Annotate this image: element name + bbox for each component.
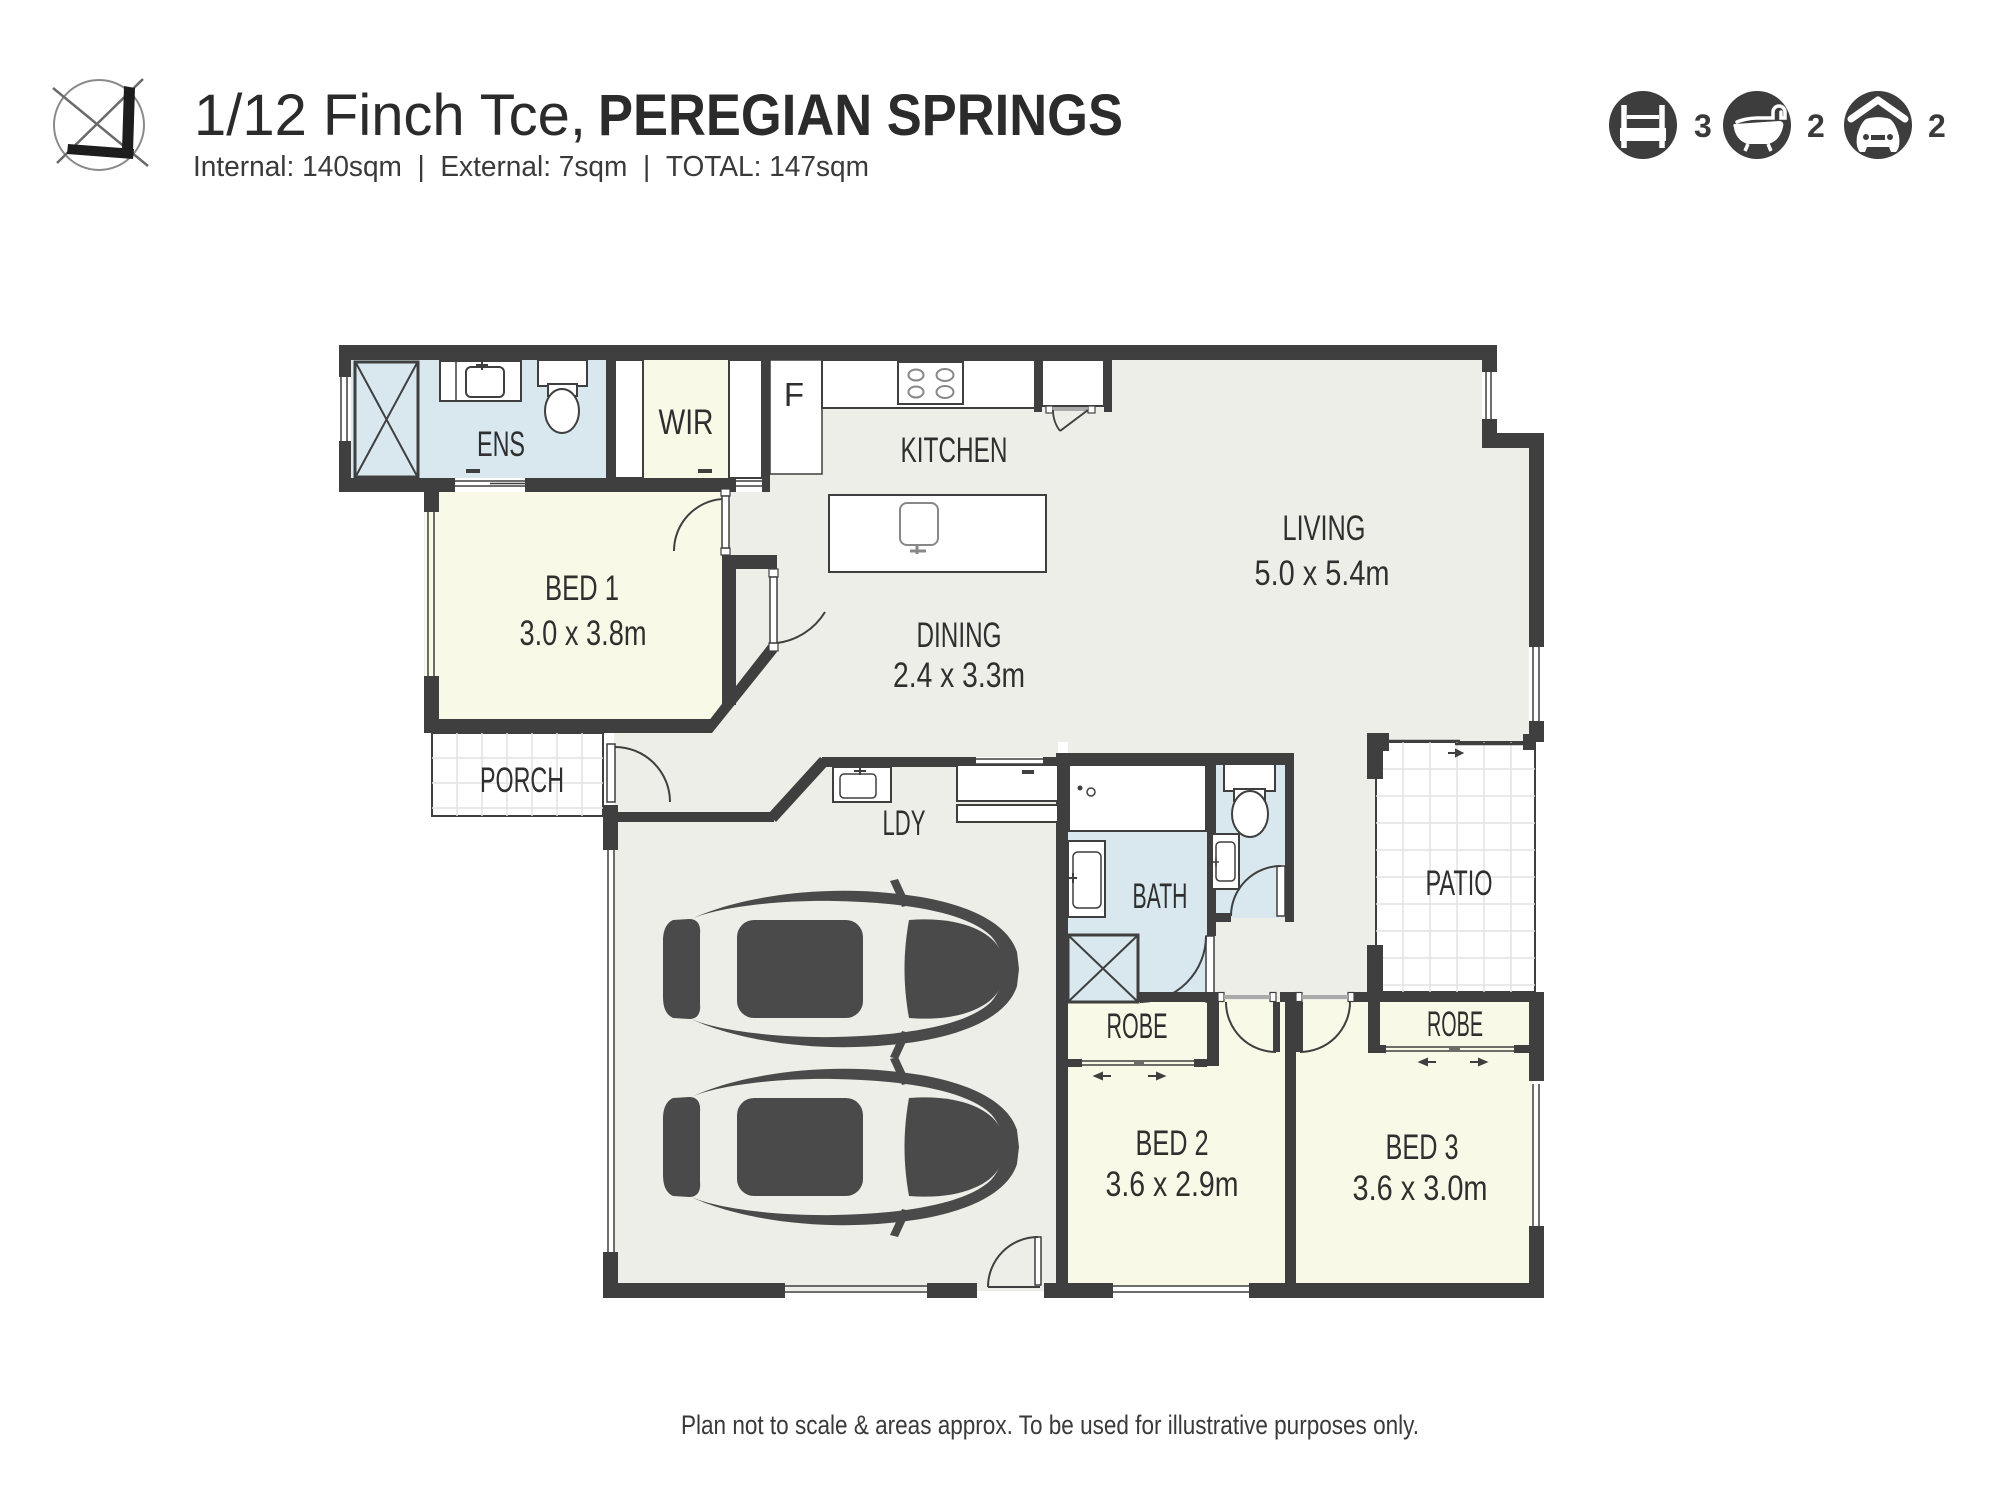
svg-text:3.6 x 2.9m: 3.6 x 2.9m xyxy=(1106,1165,1239,1204)
svg-text:LDY: LDY xyxy=(883,804,926,843)
svg-text:2: 2 xyxy=(1807,108,1825,144)
svg-text:Plan not to scale & areas appr: Plan not to scale & areas approx. To be … xyxy=(681,1410,1419,1440)
svg-text:PEREGIAN SPRINGS: PEREGIAN SPRINGS xyxy=(598,83,1123,148)
svg-text:5.0 x 5.4m: 5.0 x 5.4m xyxy=(1255,554,1390,593)
svg-text:PORCH: PORCH xyxy=(480,761,564,800)
svg-text:2.4 x 3.3m: 2.4 x 3.3m xyxy=(893,656,1025,695)
svg-text:ROBE: ROBE xyxy=(1427,1005,1483,1044)
svg-text:3.0 x 3.8m: 3.0 x 3.8m xyxy=(520,614,647,653)
svg-text:Internal: 140sqm | External:: Internal: 140sqm | External: 7sqm | TOTA… xyxy=(193,151,869,183)
svg-text:3.6 x 3.0m: 3.6 x 3.0m xyxy=(1353,1169,1488,1208)
svg-text:KITCHEN: KITCHEN xyxy=(901,431,1008,470)
svg-text:BED 3: BED 3 xyxy=(1386,1128,1459,1167)
svg-text:BED 1: BED 1 xyxy=(545,569,619,608)
svg-text:ENS: ENS xyxy=(477,425,525,464)
svg-text:F: F xyxy=(784,376,804,413)
svg-text:BATH: BATH xyxy=(1133,877,1188,916)
svg-text:WIR: WIR xyxy=(659,403,714,442)
svg-text:PATIO: PATIO xyxy=(1426,864,1493,903)
svg-text:LIVING: LIVING xyxy=(1283,509,1366,548)
svg-text:3: 3 xyxy=(1694,108,1712,144)
svg-text:1/12 Finch Tce,: 1/12 Finch Tce, xyxy=(194,83,586,148)
svg-text:BED 2: BED 2 xyxy=(1136,1124,1209,1163)
svg-text:ROBE: ROBE xyxy=(1107,1007,1168,1046)
svg-text:DINING: DINING xyxy=(917,616,1002,655)
svg-text:2: 2 xyxy=(1928,108,1946,144)
